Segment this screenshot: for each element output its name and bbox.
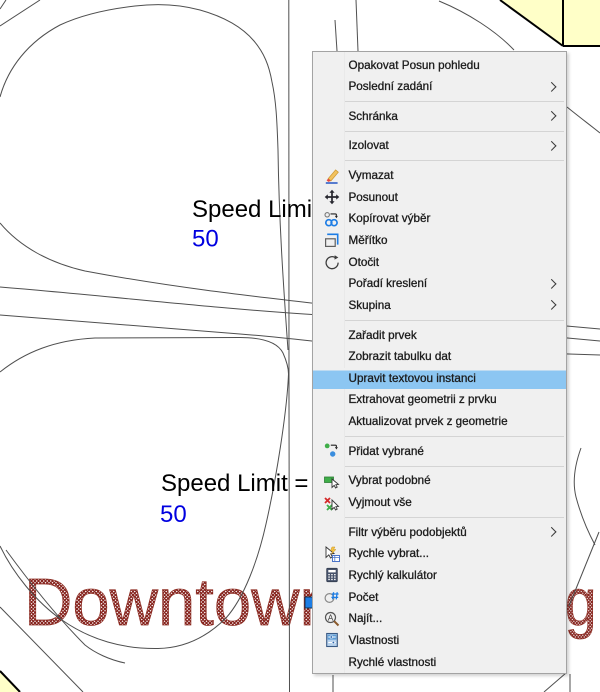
svg-text:50: 50: [160, 501, 187, 528]
svg-text:Speed Limit =: Speed Limit =: [161, 470, 308, 497]
svg-text:Downtown: Downtown: [24, 565, 337, 640]
svg-text:A: A: [328, 613, 334, 622]
svg-text:50: 50: [192, 226, 219, 253]
